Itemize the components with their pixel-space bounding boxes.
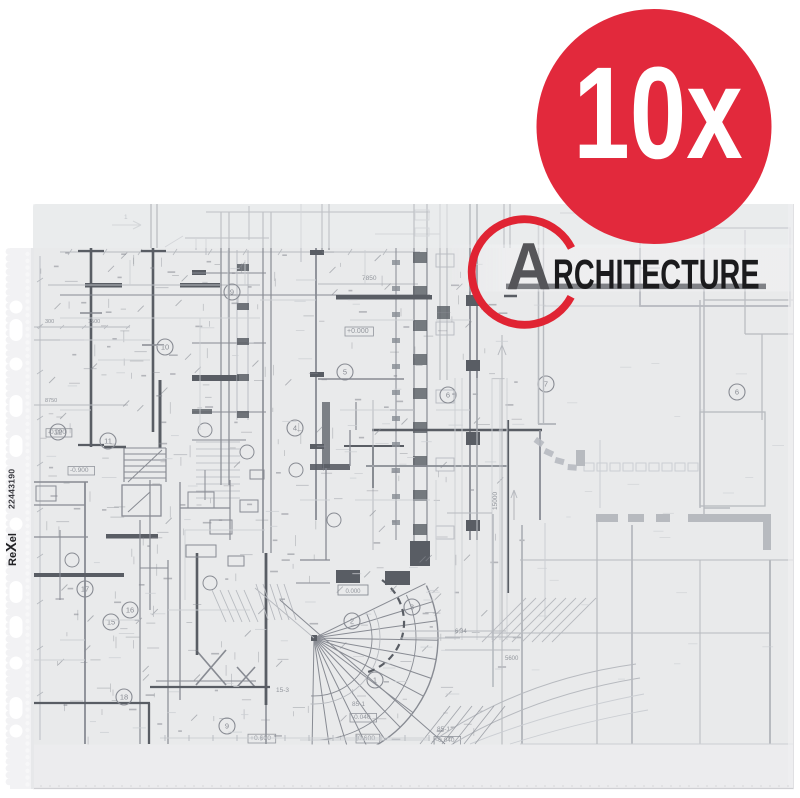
svg-text:10x: 10x (573, 40, 742, 186)
